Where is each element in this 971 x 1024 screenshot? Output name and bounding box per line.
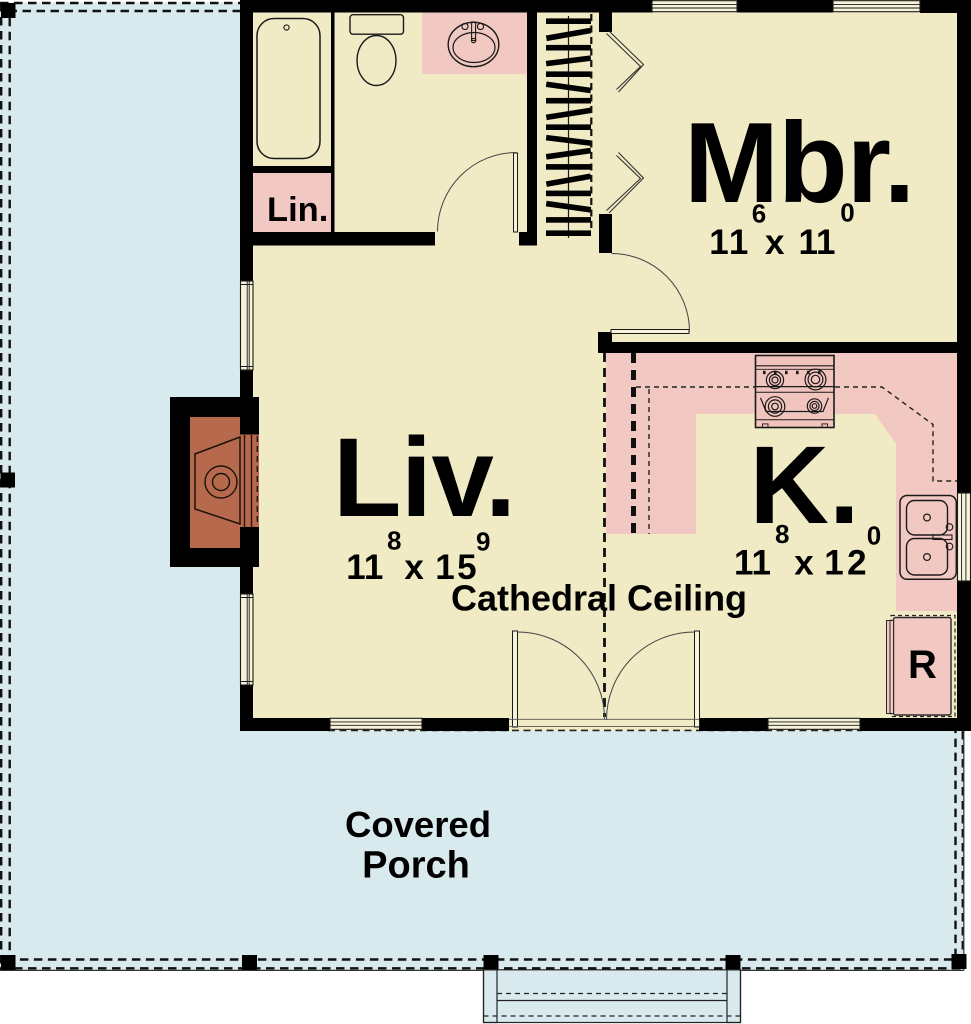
svg-text:11: 11 [346,548,383,587]
svg-text:8: 8 [387,526,401,556]
svg-text:11: 11 [799,223,836,262]
svg-text:x: x [404,548,424,587]
svg-text:Porch: Porch [362,845,470,887]
svg-text:Liv.: Liv. [333,415,516,540]
svg-text:Cathedral Ceiling: Cathedral Ceiling [451,578,747,619]
svg-text:8: 8 [775,519,789,549]
svg-text:0: 0 [867,521,881,551]
svg-text:Lin.: Lin. [267,191,328,229]
svg-text:11: 11 [734,544,771,583]
svg-text:x: x [765,223,785,262]
svg-text:9: 9 [476,527,490,557]
svg-text:K.: K. [750,424,860,547]
svg-text:Mbr.: Mbr. [684,100,914,227]
svg-text:11: 11 [709,223,750,262]
svg-text:12: 12 [824,544,870,583]
svg-text:0: 0 [840,198,854,228]
svg-text:R: R [908,643,937,687]
svg-text:Covered: Covered [345,804,491,845]
svg-text:x: x [794,544,814,583]
